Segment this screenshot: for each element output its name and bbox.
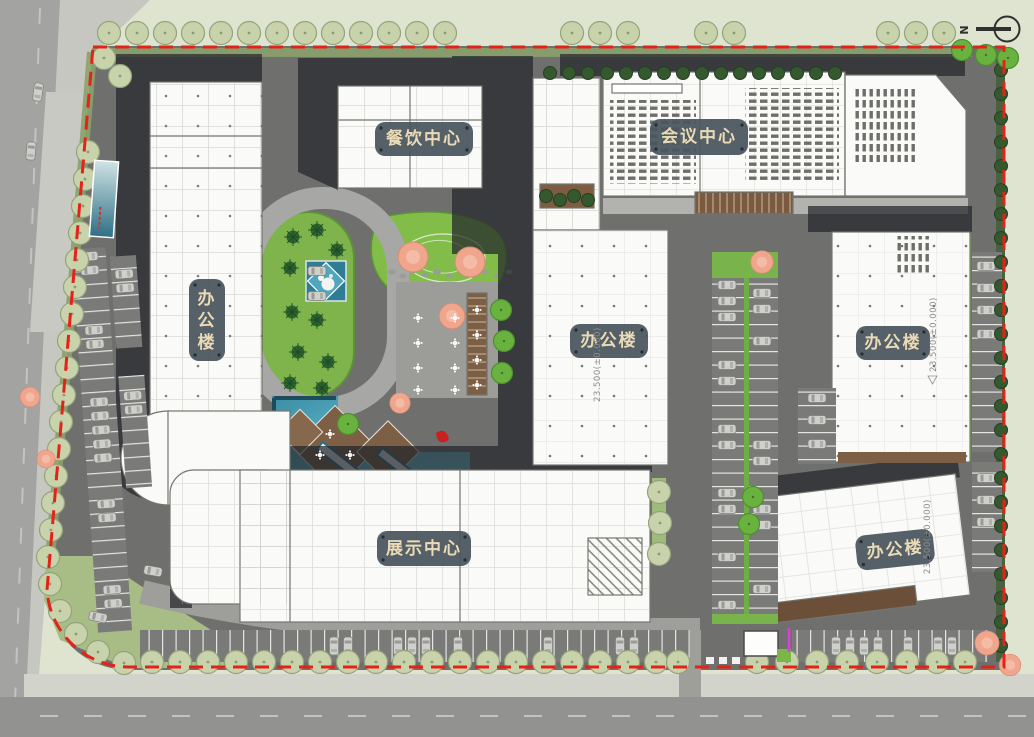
label-conference-text: 会议中心 [661, 126, 737, 147]
label-office-west: 办 公 楼 [189, 279, 225, 361]
site-plan-canvas: 餐饮中心 会议中心 办 公 楼 办公楼 办公楼 展示中心 办公楼 [0, 0, 1034, 737]
elevation-southeast-text: 23.500(±0.000) [923, 499, 933, 574]
building-office-west [150, 82, 262, 432]
central-island [262, 212, 354, 398]
label-office-west-char2: 公 [198, 311, 217, 331]
crosswalk [706, 657, 740, 664]
label-office-west-char3: 楼 [198, 332, 217, 353]
north-arrow-label: N [958, 25, 971, 34]
parking-mid [798, 388, 836, 464]
label-exhibition-text: 展示中心 [386, 538, 462, 559]
deck-east-office [838, 452, 966, 463]
entrance-canopy-northwest [89, 160, 118, 237]
pergola-walkway [695, 192, 793, 214]
buildings [121, 72, 971, 625]
label-office-east-text: 办公楼 [865, 332, 922, 353]
label-office-center: 办公楼 [570, 324, 648, 358]
label-exhibition-center: 展示中心 [377, 531, 471, 566]
elevation-east-text: 23.500(±0.000) [929, 297, 939, 372]
label-office-east: 办公楼 [856, 326, 930, 360]
label-office-center-text: 办公楼 [581, 330, 638, 351]
parking-center [712, 252, 778, 624]
label-dining-center: 餐饮中心 [375, 122, 473, 156]
label-dining-text: 餐饮中心 [386, 128, 462, 149]
label-conference-center: 会议中心 [650, 119, 748, 155]
elevation-center-text: 23.500(±0.000) [593, 327, 603, 402]
label-office-west-char1: 办 [198, 288, 217, 309]
master-plan-svg: 餐饮中心 会议中心 办 公 楼 办公楼 办公楼 展示中心 办公楼 [0, 0, 1034, 737]
